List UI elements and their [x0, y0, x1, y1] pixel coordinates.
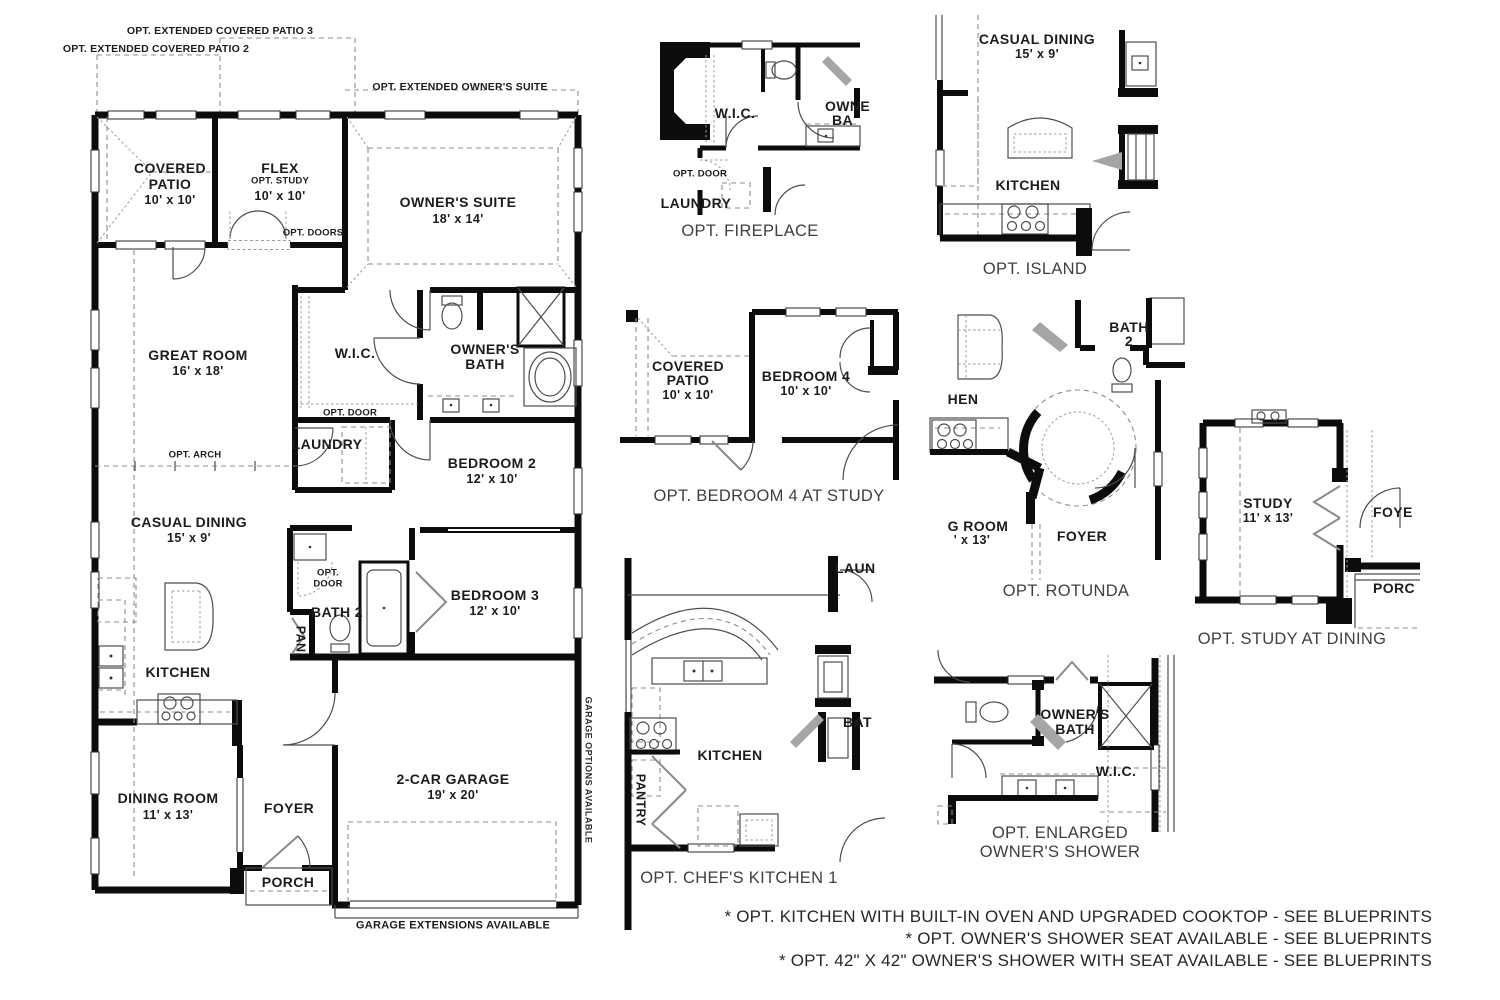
- porch-label: PORCH: [262, 875, 315, 889]
- opt-door-bath2-label: OPT.: [317, 568, 339, 578]
- st-foyer-label: FOYE: [1373, 505, 1413, 519]
- covered-patio-label: COVERED: [134, 161, 206, 175]
- dining-room-label: DINING ROOM: [118, 791, 219, 805]
- garage-dims: 19' x 20': [427, 789, 478, 802]
- owners-suite-label: OWNER'S SUITE: [400, 195, 517, 209]
- rot-dining-dims: ' x 13': [954, 534, 991, 547]
- garage-options-note: GARAGE OPTIONS AVAILABLE: [584, 697, 593, 844]
- isl-kitchen-label: KITCHEN: [995, 178, 1060, 192]
- flex-opt-study-label: OPT. STUDY: [251, 176, 309, 186]
- ck-pantry-label: PANTRY: [634, 774, 647, 826]
- detail-fireplace-linework: [660, 41, 860, 215]
- b4-caption: OPT. BEDROOM 4 AT STUDY: [654, 488, 885, 505]
- opt-extended-owners-suite-label: OPT. EXTENDED OWNER'S SUITE: [372, 82, 547, 93]
- opt-door-laundry-label: OPT. DOOR: [323, 408, 377, 418]
- covered-patio-label-2: PATIO: [149, 177, 192, 191]
- rot-kitchen-label: HEN: [948, 392, 979, 406]
- ck-bath-label: BAT: [843, 715, 872, 729]
- rot-bath-label: BATH: [1109, 320, 1148, 334]
- isl-caption: OPT. ISLAND: [983, 261, 1087, 278]
- fp-opt-door-label: OPT. DOOR: [673, 169, 727, 179]
- garage-label: 2-CAR GARAGE: [397, 772, 510, 786]
- dining-room-dims: 11' x 13': [143, 809, 194, 822]
- bedroom2-dims: 12' x 10': [466, 473, 517, 486]
- sh-caption: OPT. ENLARGED: [992, 825, 1128, 842]
- opt-arch-label: OPT. ARCH: [169, 450, 222, 460]
- opt-door-bath2-label-2: DOOR: [313, 579, 342, 589]
- rot-bath-num: 2: [1125, 334, 1133, 348]
- ck-laundry-label: LAUN: [835, 561, 875, 575]
- covered-patio-dims: 10' x 10': [144, 194, 195, 207]
- fp-wic-label: W.I.C.: [715, 106, 756, 120]
- owners-bath-label-2: BATH: [465, 357, 504, 371]
- isl-casual-dining-dims: 15' x 9': [1015, 48, 1059, 61]
- st-study-label: STUDY: [1243, 496, 1292, 510]
- opt-extended-covered-patio-2-label: OPT. EXTENDED COVERED PATIO 2: [63, 44, 249, 55]
- owners-suite-dims: 18' x 14': [432, 213, 483, 226]
- rot-dining-label: G ROOM: [948, 519, 1009, 533]
- detail-shower-linework: [934, 650, 1174, 832]
- casual-dining-label: CASUAL DINING: [131, 515, 247, 529]
- great-room-label: GREAT ROOM: [148, 348, 247, 362]
- laundry-label: LAUNDRY: [292, 437, 363, 451]
- flex-dims: 10' x 10': [254, 190, 305, 203]
- st-study-dims: 11' x 13': [1243, 512, 1294, 525]
- st-caption: OPT. STUDY AT DINING: [1198, 631, 1386, 648]
- bedroom3-dims: 12' x 10': [469, 605, 520, 618]
- casual-dining-dims: 15' x 9': [167, 532, 211, 545]
- flex-label: FLEX: [261, 161, 298, 175]
- fp-laundry-label: LAUNDRY: [661, 196, 732, 210]
- st-porch-label: PORC: [1373, 581, 1415, 595]
- great-room-dims: 16' x 18': [172, 365, 223, 378]
- b4-covered-label: COVERED: [652, 359, 724, 373]
- owners-bath-label: OWNER'S: [450, 342, 519, 356]
- b4-bedroom-dims: 10' x 10': [780, 385, 831, 398]
- kitchen-label: KITCHEN: [145, 665, 210, 679]
- b4-patio-dims: 10' x 10': [662, 389, 713, 402]
- footnote-shower-42: * OPT. 42" X 42" OWNER'S SHOWER WITH SEA…: [724, 950, 1432, 972]
- foyer-label: FOYER: [264, 801, 314, 815]
- floorplan-sheet: OPT. EXTENDED COVERED PATIO 3 OPT. EXTEN…: [0, 0, 1500, 1000]
- fp-caption: OPT. FIREPLACE: [681, 223, 818, 240]
- rot-foyer-label: FOYER: [1057, 529, 1107, 543]
- footnote-shower-seat: * OPT. OWNER'S SHOWER SEAT AVAILABLE - S…: [724, 928, 1432, 950]
- b4-bedroom-label: BEDROOM 4: [762, 369, 850, 383]
- ck-caption: OPT. CHEF'S KITCHEN 1: [640, 870, 837, 887]
- bedroom2-label: BEDROOM 2: [448, 456, 536, 470]
- opt-extended-covered-patio-3-label: OPT. EXTENDED COVERED PATIO 3: [127, 26, 313, 37]
- isl-casual-dining-label: CASUAL DINING: [979, 32, 1095, 46]
- sh-wic-label: W.I.C.: [1096, 764, 1137, 778]
- ck-kitchen-label: KITCHEN: [697, 748, 762, 762]
- footnote-kitchen: * OPT. KITCHEN WITH BUILT-IN OVEN AND UP…: [724, 906, 1432, 928]
- bedroom3-label: BEDROOM 3: [451, 588, 539, 602]
- pantry-label: PAN.: [294, 626, 307, 657]
- opt-doors-label: OPT. DOORS: [283, 228, 344, 238]
- sh-bath-label: BATH: [1055, 722, 1094, 736]
- fp-owners-bath-label: OWNE: [825, 99, 870, 113]
- footnotes: * OPT. KITCHEN WITH BUILT-IN OVEN AND UP…: [724, 906, 1432, 973]
- sh-caption-2: OWNER'S SHOWER: [980, 844, 1140, 861]
- b4-patio-label: PATIO: [667, 373, 710, 387]
- sh-owners-label: OWNER'S: [1040, 707, 1109, 721]
- fp-owners-bath-label-2: BA: [832, 113, 853, 127]
- garage-extensions-note: GARAGE EXTENSIONS AVAILABLE: [356, 921, 550, 932]
- bath2-label: BATH 2: [311, 605, 363, 619]
- wic-label: W.I.C.: [335, 346, 376, 360]
- rot-caption: OPT. ROTUNDA: [1003, 583, 1129, 600]
